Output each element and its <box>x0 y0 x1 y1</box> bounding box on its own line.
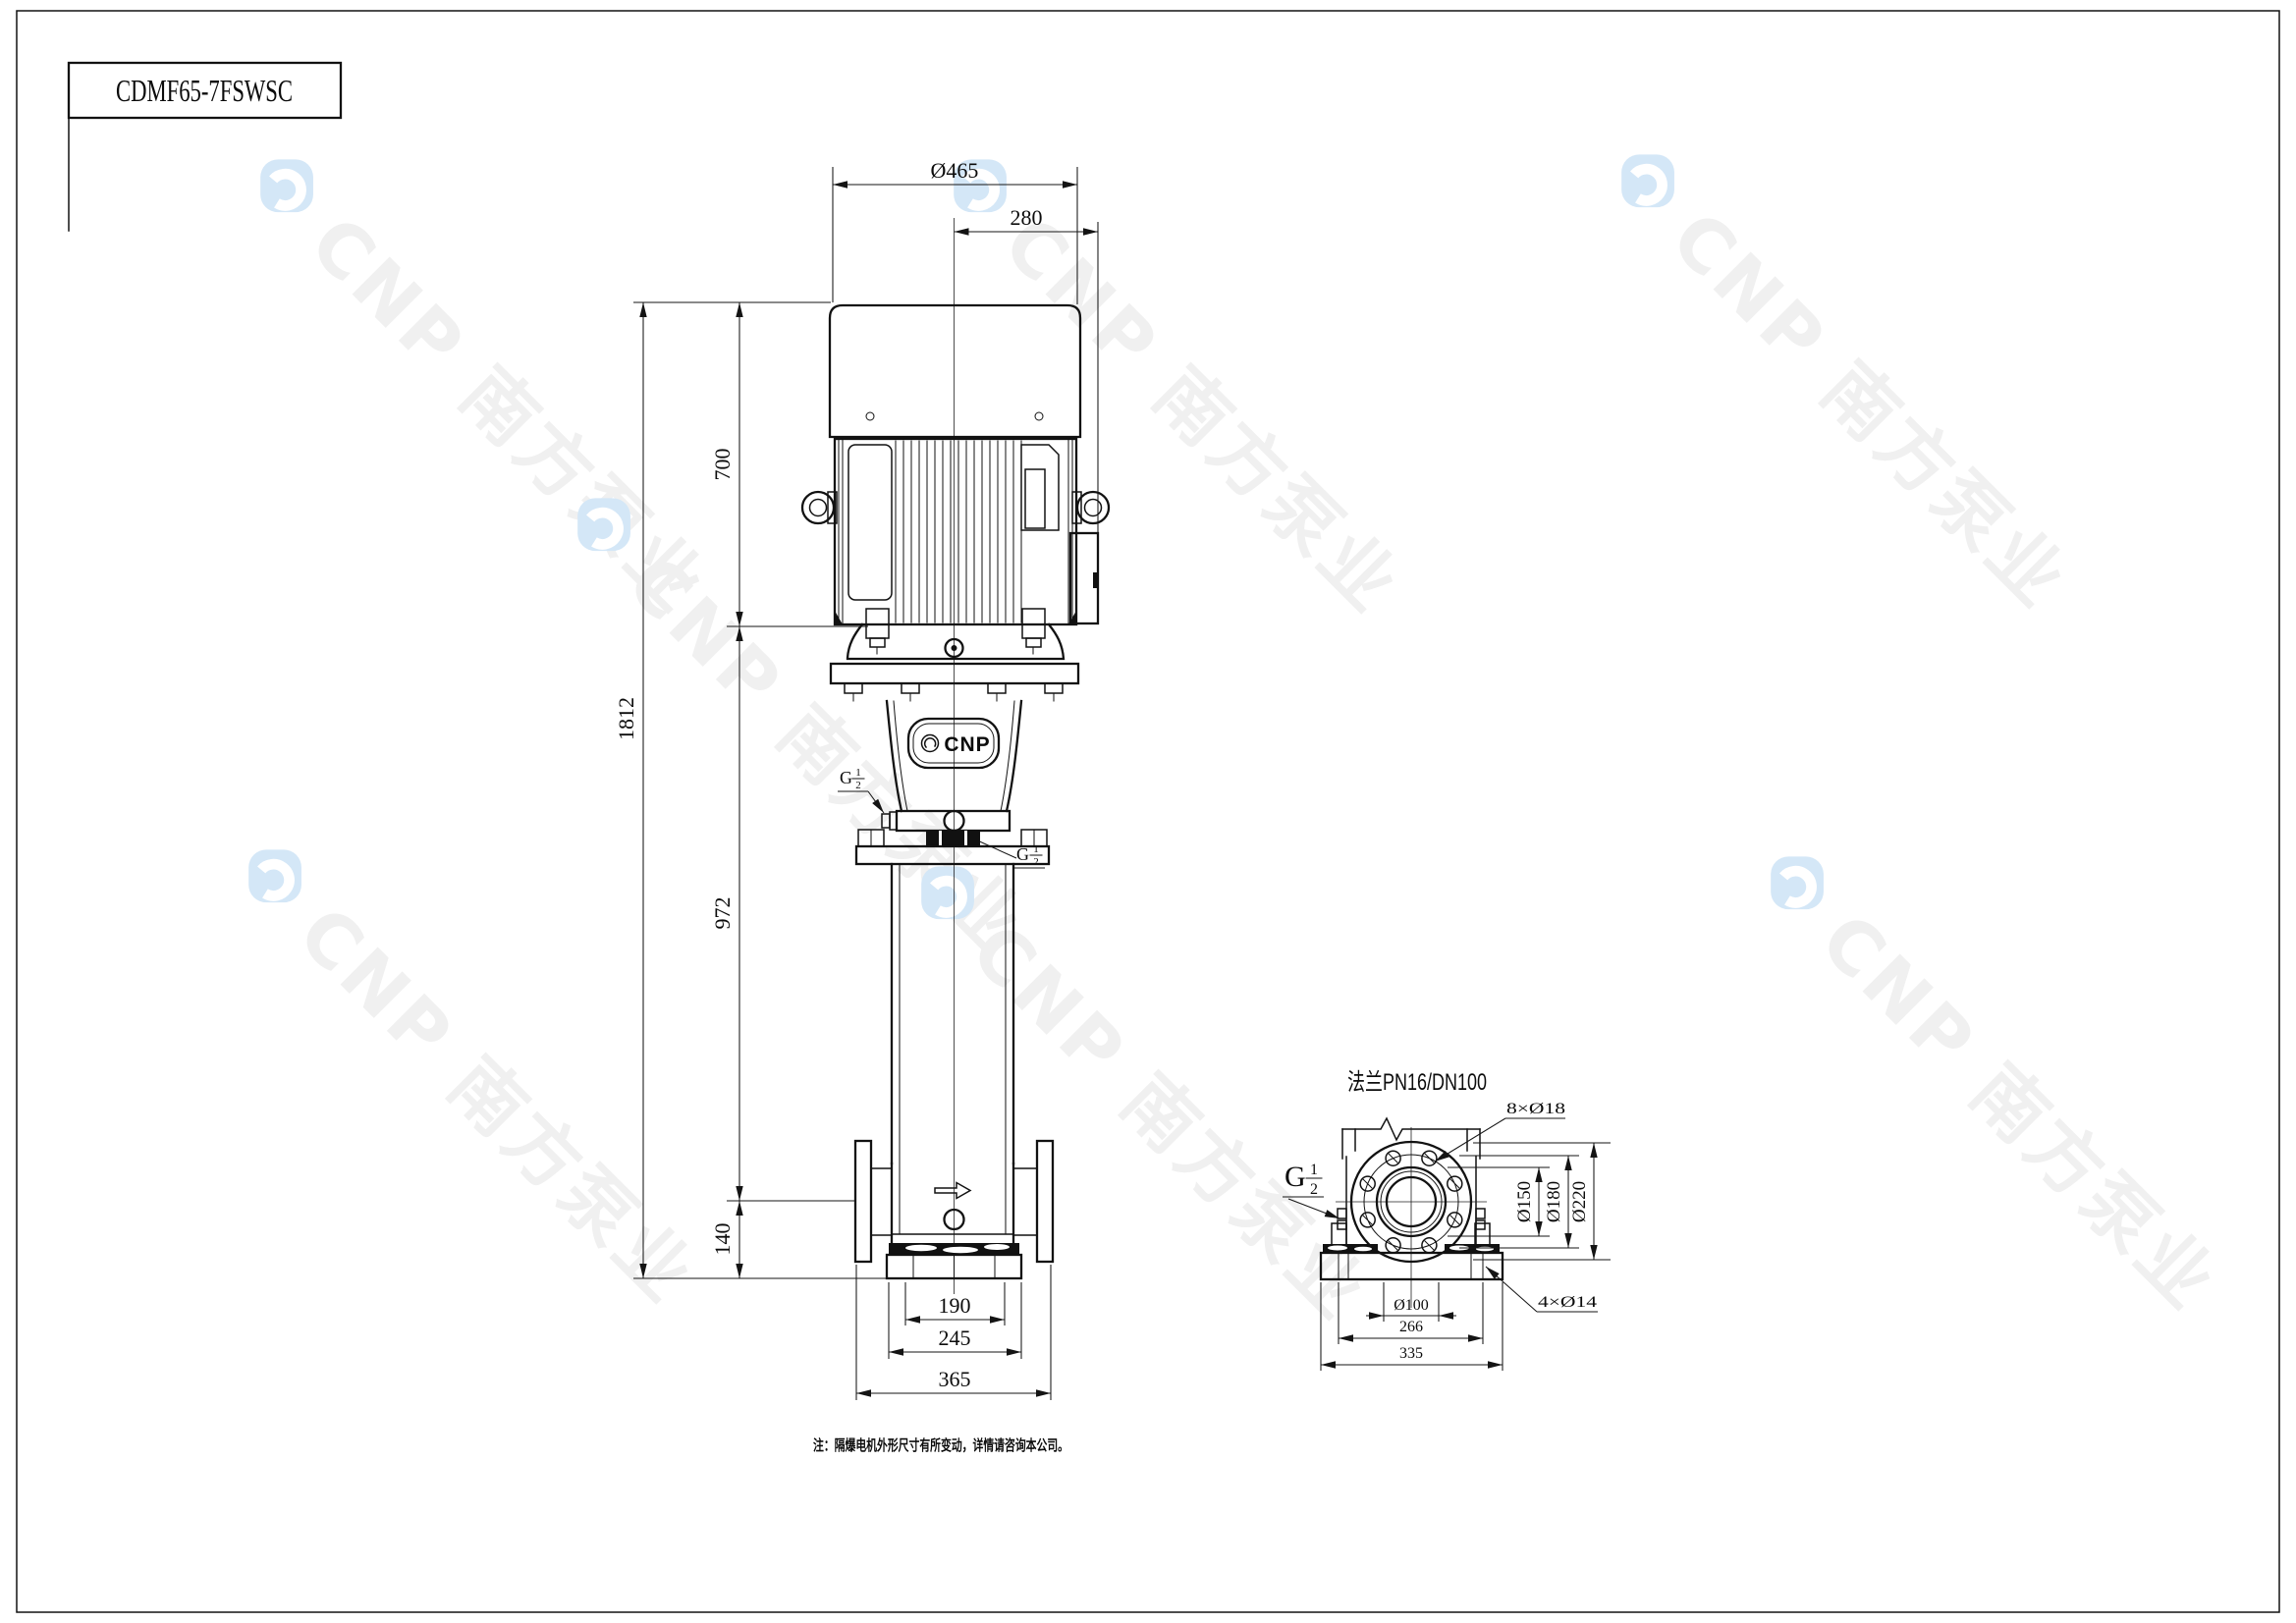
stool-flange-plate <box>831 664 1078 683</box>
stool-side-inner <box>1001 701 1014 811</box>
brand-plate-text: CNP <box>944 733 990 756</box>
gasket-slit <box>905 1245 937 1251</box>
dim-bolt-circle: Ø180 <box>1544 1181 1564 1222</box>
drawing-note: 注：隔爆电机外形尺寸有所变动，详情请咨询本公司。 <box>813 1436 1068 1454</box>
base-plate-ribs <box>1339 1253 1483 1279</box>
motor-edge-fins <box>839 440 1072 623</box>
leader-line <box>1435 1118 1505 1162</box>
bolt-holes-label: 8×Ø18 <box>1506 1101 1565 1117</box>
gasket-slit <box>1476 1247 1494 1252</box>
screw-icon <box>1035 412 1043 420</box>
cooling-fins <box>896 441 1021 622</box>
thread-num: 1 <box>1310 1162 1318 1178</box>
flange-spec-title: 法兰PN16/DN100 <box>1347 1069 1487 1096</box>
drain-plug-dot <box>952 645 957 651</box>
base-ribs <box>913 1255 995 1278</box>
terminal-cover <box>1025 469 1045 528</box>
gasket-slit <box>1354 1247 1372 1252</box>
gasket-slit <box>943 1247 978 1253</box>
side-port <box>1476 1220 1485 1229</box>
dim-flange-od: Ø220 <box>1569 1181 1590 1222</box>
dim-base-mid: 245 <box>939 1325 971 1350</box>
side-port <box>1476 1209 1485 1218</box>
junction-box-latch <box>1093 572 1098 588</box>
lower-body <box>892 1163 1013 1243</box>
flange-bolts <box>845 683 1063 701</box>
pump-head <box>897 811 1010 831</box>
leader-line <box>1486 1267 1537 1312</box>
dim-motor-height: 700 <box>710 449 735 481</box>
sleeve-inner <box>900 864 1006 1163</box>
coupling-slit <box>964 831 967 845</box>
thread-den: 2 <box>1033 856 1039 868</box>
dim-base-width: 335 <box>1399 1345 1423 1362</box>
dim-center-to-box: 280 <box>1011 205 1043 230</box>
leader-line <box>1288 1199 1339 1218</box>
thread-den: 2 <box>855 780 861 791</box>
dim-pump-body-height: 972 <box>710 897 735 930</box>
screw-icon <box>866 412 874 420</box>
drawing-sheet: CNP 南方泵业 CNP 南方泵业 CNP 南方泵业 CNP 南方泵业 <box>0 0 2296 1623</box>
dim-bolt-spacing: 266 <box>1399 1319 1423 1335</box>
page-border <box>17 11 2279 1612</box>
anchor-holes-label: 4×Ø14 <box>1538 1294 1597 1311</box>
dim-base-outer: 365 <box>939 1367 971 1391</box>
dim-port-dia: Ø100 <box>1394 1297 1429 1314</box>
dim-base-inner: 190 <box>939 1293 971 1318</box>
eye-bolt <box>1072 492 1109 523</box>
g-half-label-left: G 1 2 <box>838 767 884 813</box>
gasket-slit <box>984 1244 1010 1250</box>
leader-line <box>868 791 884 813</box>
thread-prefix: G <box>840 768 852 787</box>
suction-flange <box>855 1141 871 1262</box>
gasket-slit <box>1328 1246 1347 1251</box>
discharge-flange <box>1037 1141 1053 1262</box>
dim-fan-cover-dia: Ø465 <box>931 158 979 183</box>
flow-arrow-icon <box>935 1183 970 1199</box>
side-view: 法兰PN16/DN100 <box>1321 1069 1503 1308</box>
terminal-panel <box>1021 445 1059 530</box>
dim-port-center-height: 140 <box>710 1223 735 1256</box>
sheet-frame: CDMF65-7FSWSC <box>17 11 2279 1612</box>
thread-num: 1 <box>855 767 861 779</box>
lower-body-inner <box>900 1163 1006 1234</box>
sleeve-outer <box>892 864 1013 1163</box>
motor-body <box>835 439 1076 624</box>
thread-den: 2 <box>1310 1181 1318 1198</box>
eye-bolt <box>802 492 837 523</box>
side-port <box>1338 1220 1346 1229</box>
front-view: CNP G 1 2 G 1 2 <box>802 218 1109 1294</box>
cnp-logo-swirl <box>925 738 936 747</box>
cad-drawing: CDMF65-7FSWSC <box>0 0 2296 1623</box>
stool-side-inner <box>894 701 907 811</box>
coupling-slit <box>939 831 942 845</box>
coupling <box>926 831 980 845</box>
side-port <box>1338 1209 1346 1218</box>
side-port <box>882 814 890 828</box>
motor-bell <box>847 624 1064 659</box>
g-half-label-side: G 1 2 <box>1283 1161 1339 1218</box>
nameplate-panel <box>848 445 892 600</box>
dim-raised-face: Ø150 <box>1514 1181 1535 1222</box>
model-code: CDMF65-7FSWSC <box>116 73 293 108</box>
thread-prefix: G <box>1285 1161 1306 1193</box>
dim-total-height: 1812 <box>614 697 638 740</box>
